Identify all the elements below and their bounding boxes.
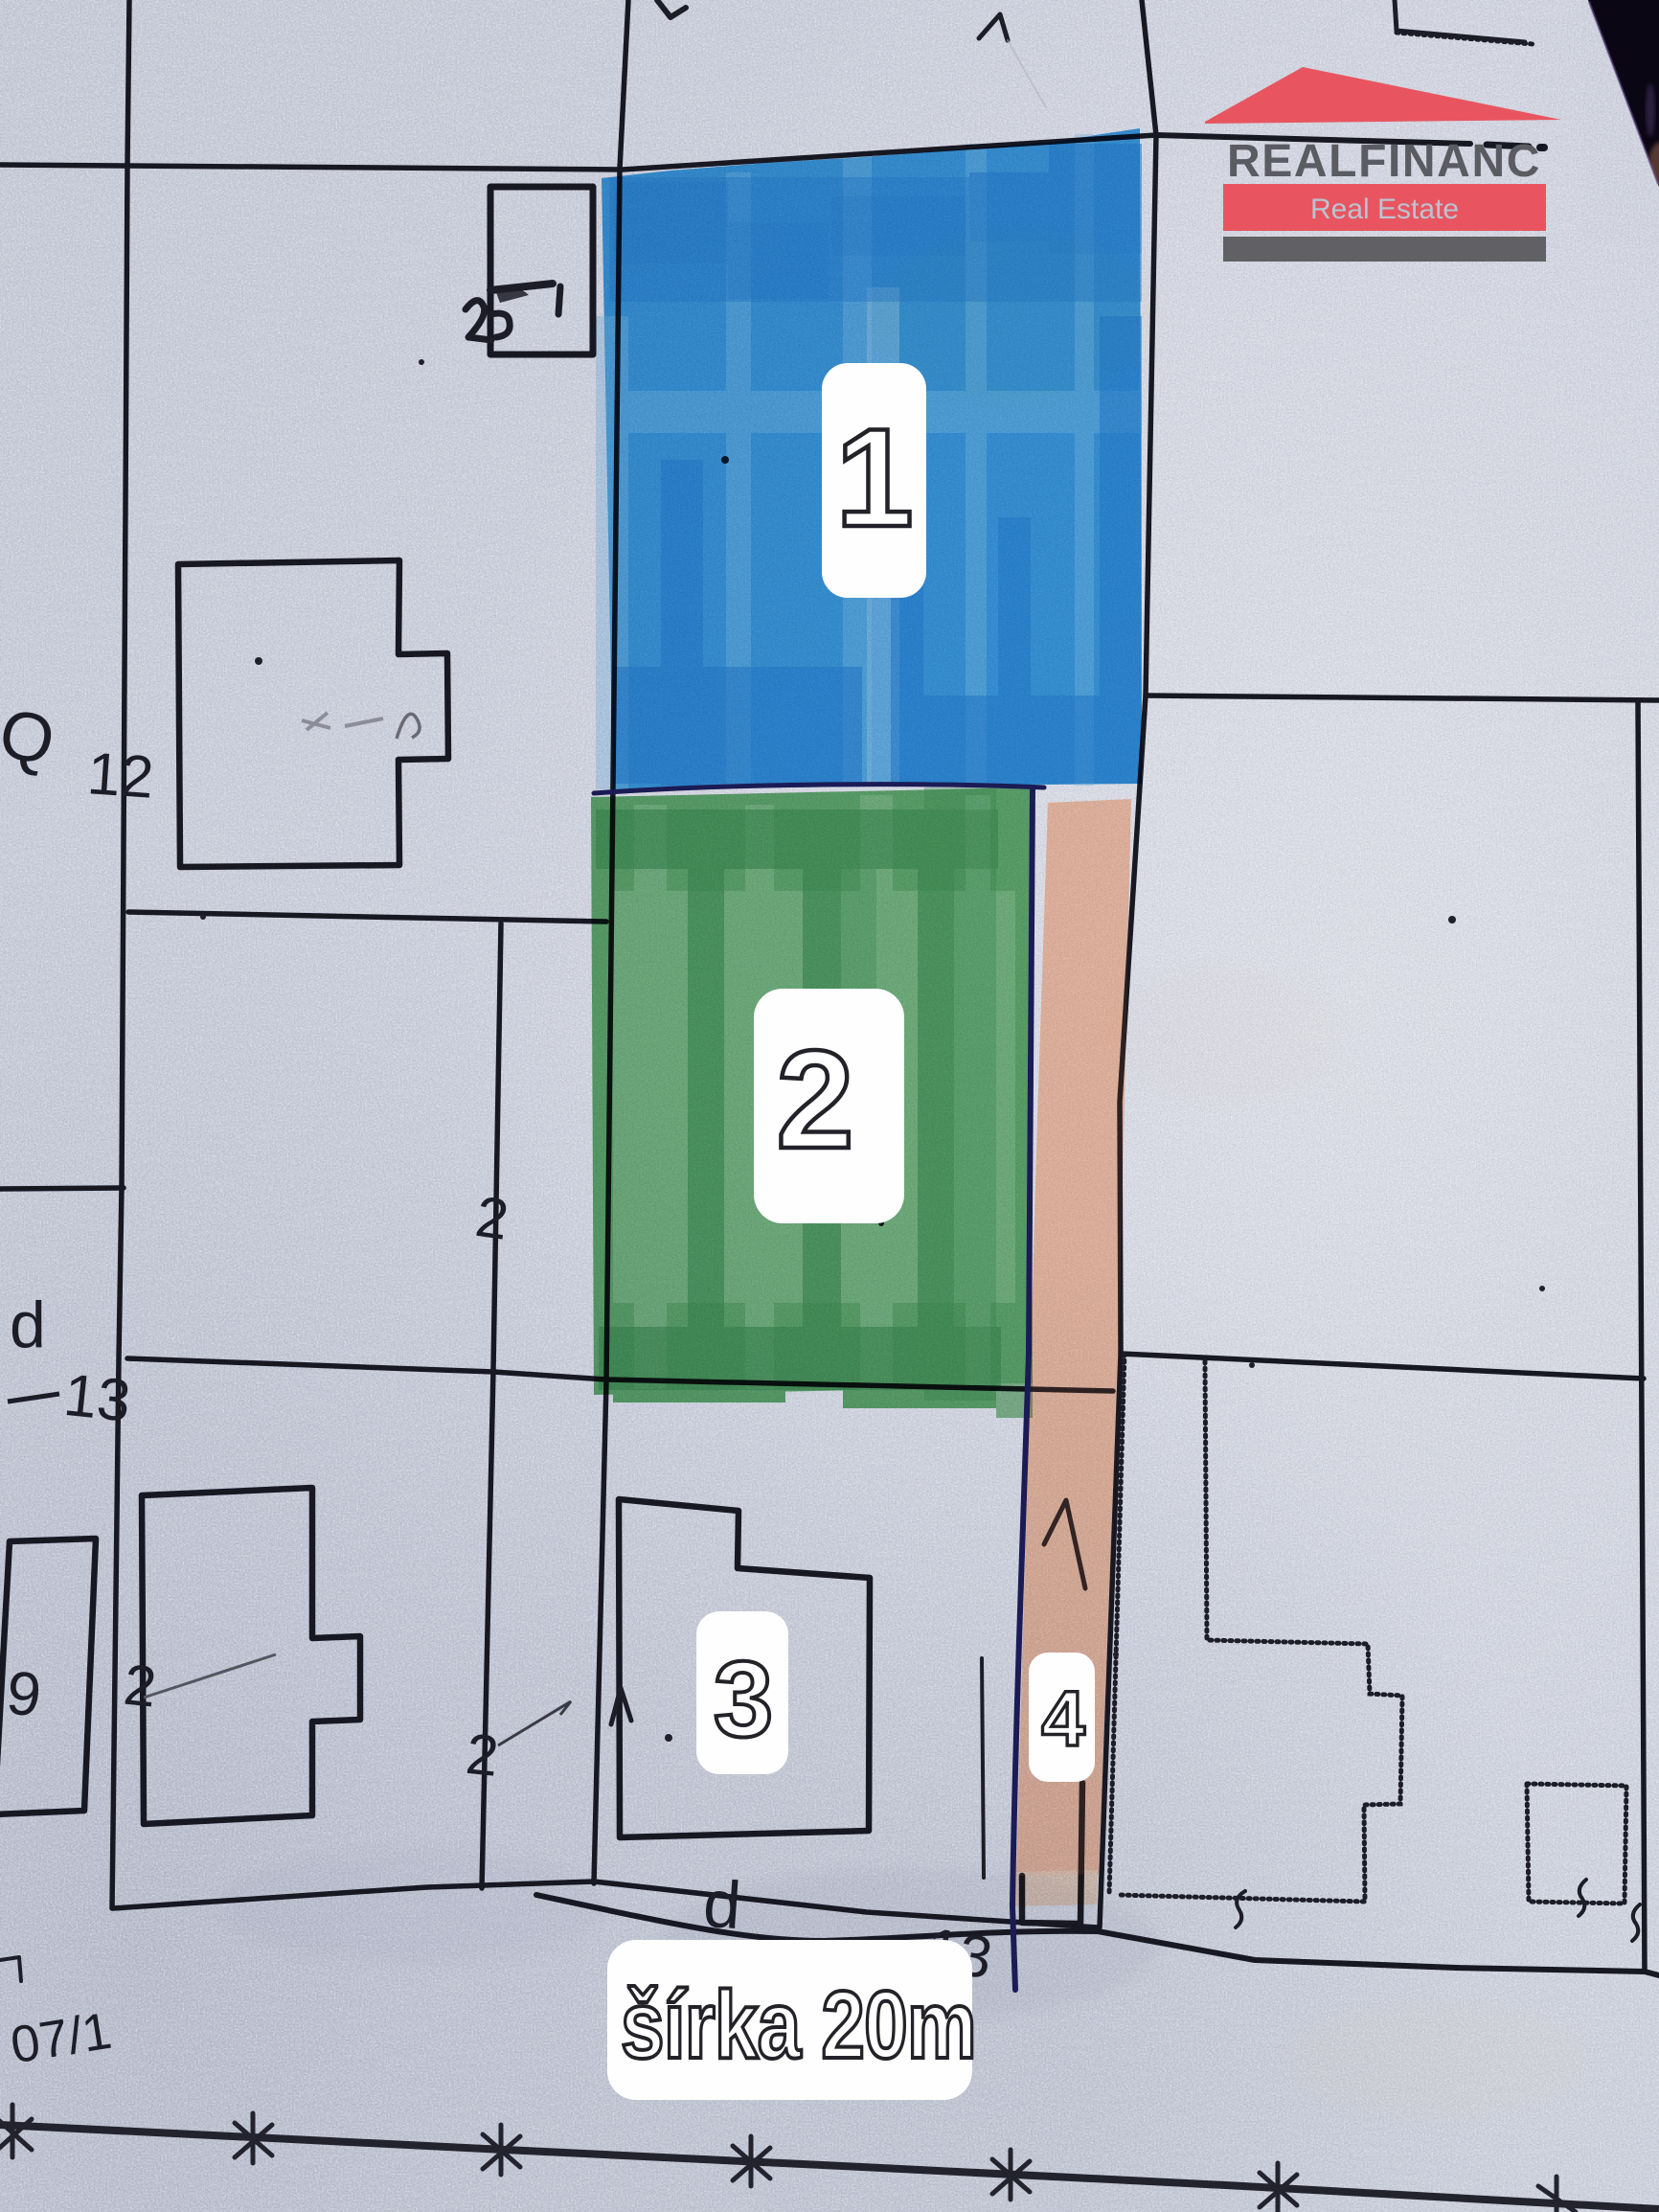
svg-text:1: 1 <box>835 399 913 556</box>
svg-text:3: 3 <box>714 1639 773 1759</box>
svg-text:d: d <box>701 1866 743 1944</box>
svg-text:9: 9 <box>3 1657 44 1729</box>
svg-text:2: 2 <box>463 1722 501 1789</box>
svg-text:2: 2 <box>121 1653 159 1720</box>
svg-text:12: 12 <box>85 741 156 811</box>
svg-text:d: d <box>10 1288 46 1361</box>
svg-text:4: 4 <box>1041 1676 1085 1763</box>
svg-text:šírka 20m: šírka 20m <box>621 1972 976 2079</box>
svg-text:Real Estate: Real Estate <box>1310 194 1459 225</box>
svg-text:REALFINANC: REALFINANC <box>1227 136 1541 187</box>
svg-text:2: 2 <box>776 1021 853 1177</box>
svg-text:13: 13 <box>61 1362 134 1435</box>
